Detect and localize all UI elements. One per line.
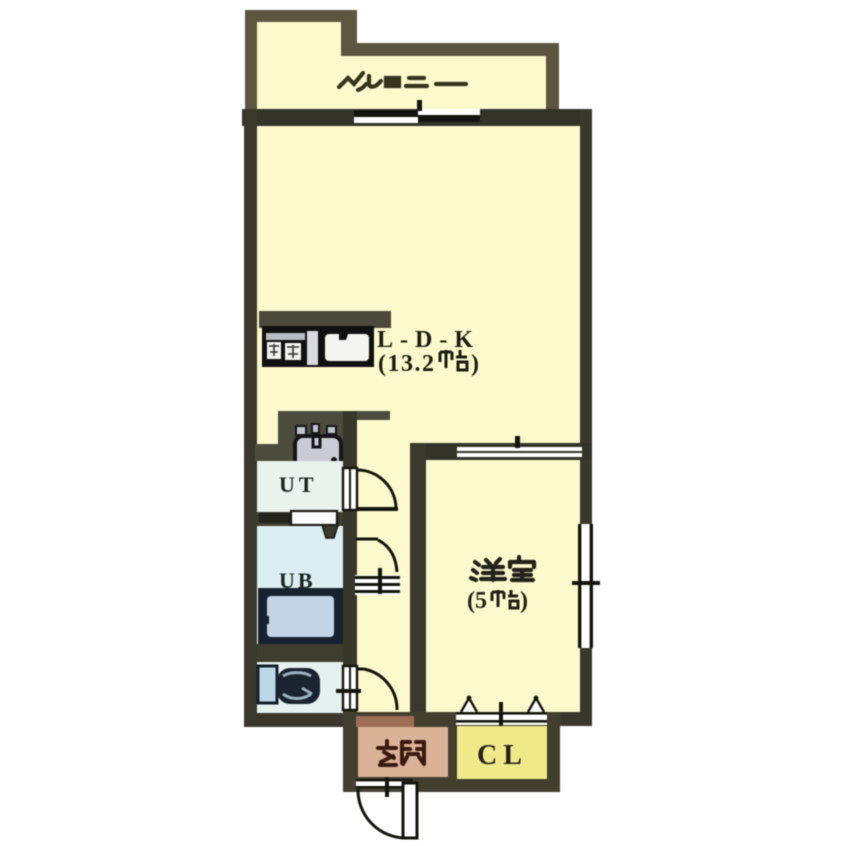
svg-text:): )	[520, 588, 528, 614]
svg-text:(5: (5	[467, 588, 487, 614]
svg-text:CL: CL	[477, 740, 528, 771]
svg-text:): )	[471, 351, 479, 377]
svg-text:(13.2: (13.2	[378, 351, 436, 377]
svg-text:UT: UT	[279, 472, 318, 497]
svg-text:L-D-K: L-D-K	[377, 327, 480, 353]
